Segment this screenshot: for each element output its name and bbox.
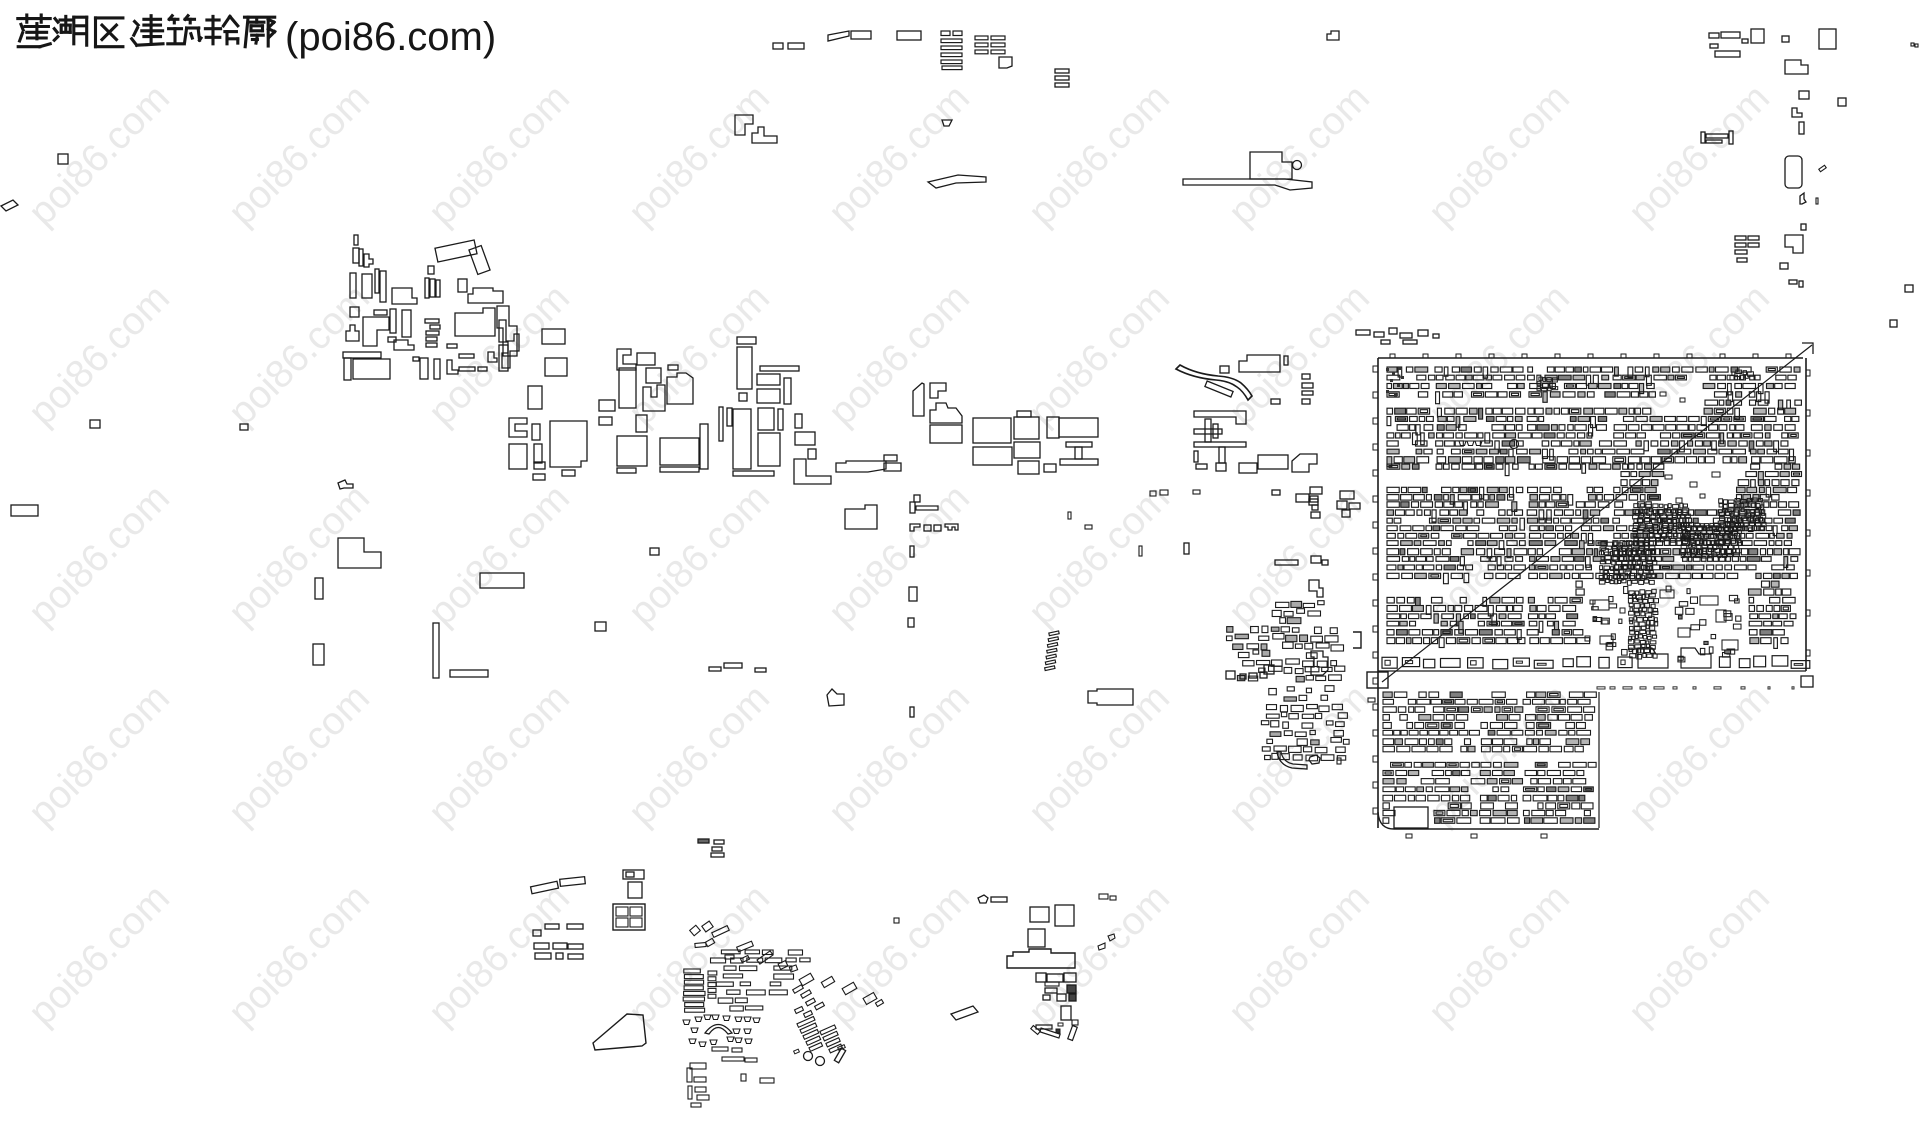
svg-text:(poi86.com): (poi86.com): [285, 15, 496, 59]
